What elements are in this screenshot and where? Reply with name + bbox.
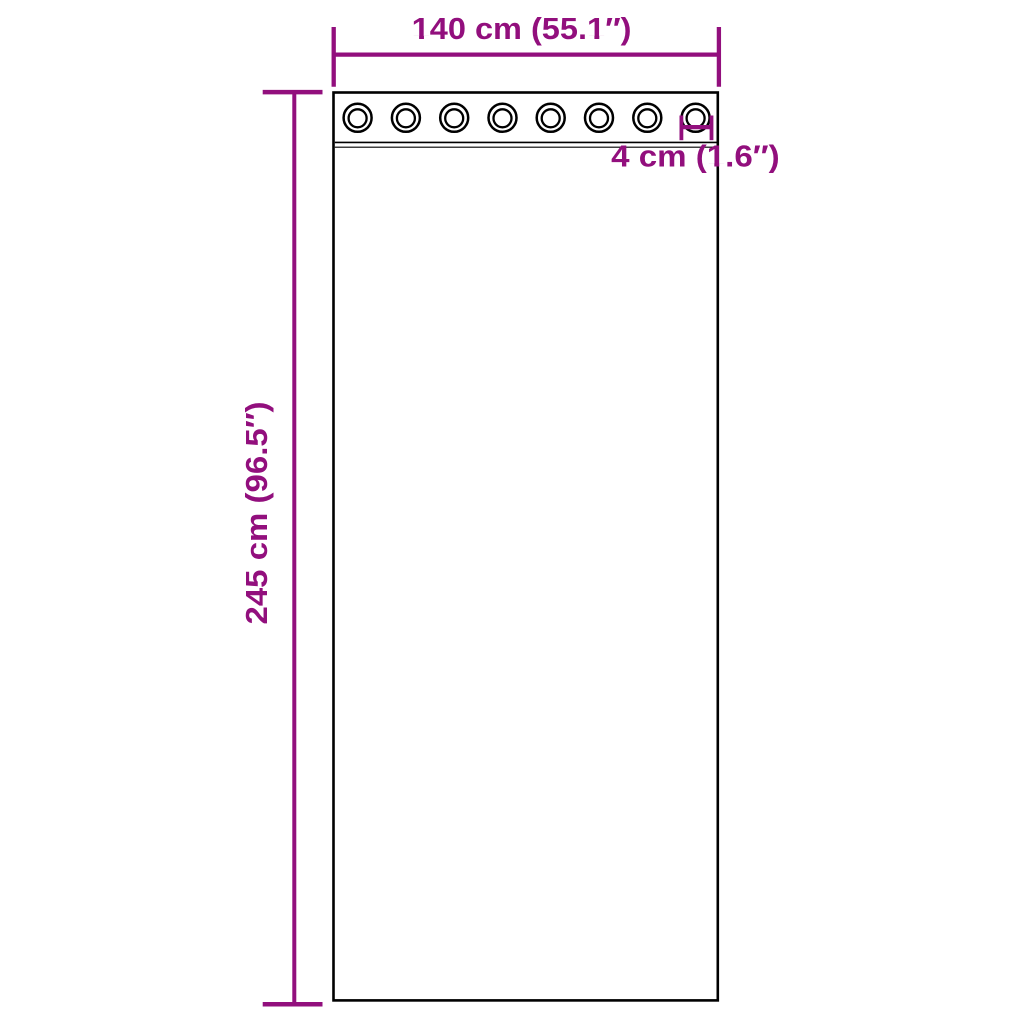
svg-text:140 cm (55.1″): 140 cm (55.1″) (412, 11, 632, 46)
svg-text:245 cm (96.5″): 245 cm (96.5″) (239, 402, 274, 625)
svg-text:4 cm (1.6″): 4 cm (1.6″) (611, 139, 780, 174)
